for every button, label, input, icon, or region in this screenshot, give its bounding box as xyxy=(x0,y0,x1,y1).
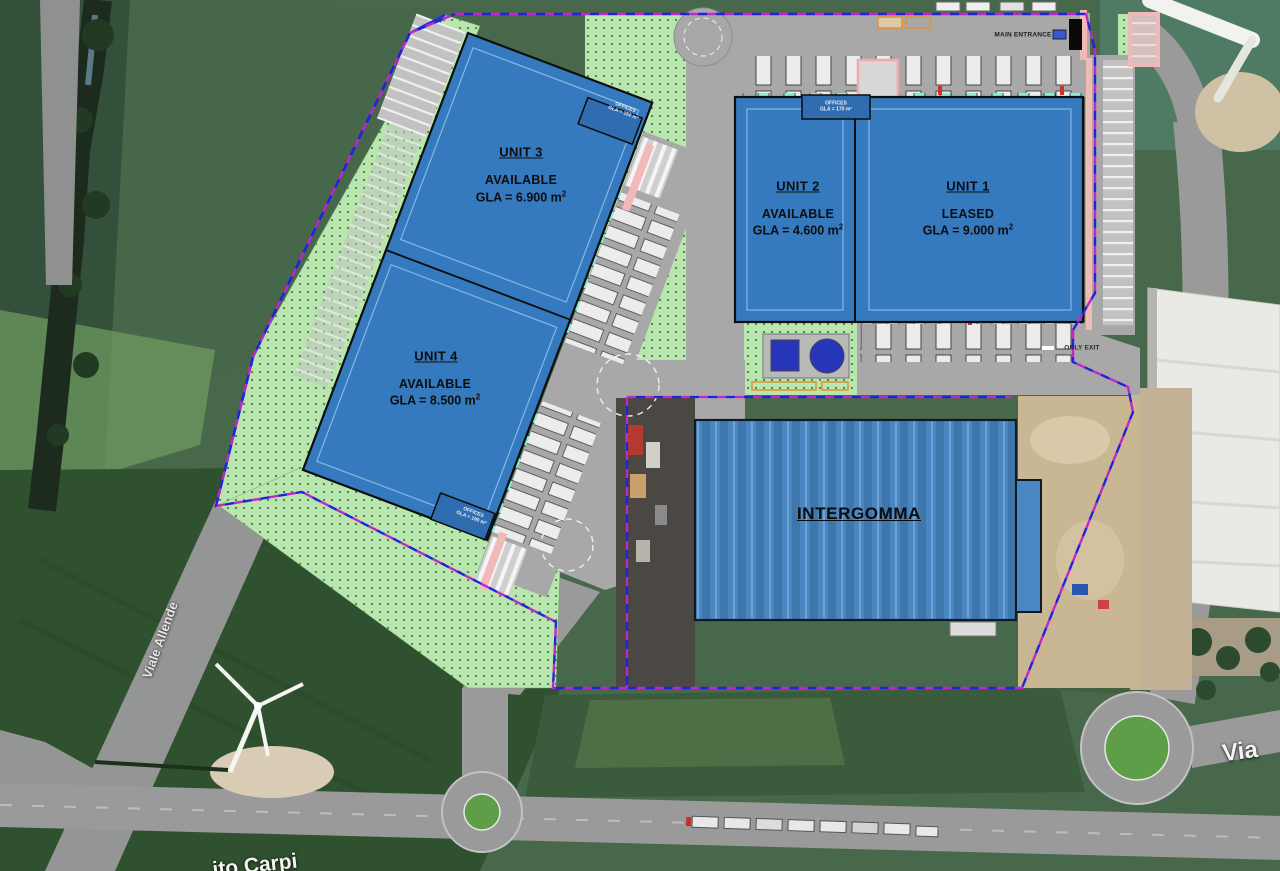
unit-4-status: AVAILABLE xyxy=(399,377,471,391)
masterplan-graphics xyxy=(0,0,1280,871)
unit-2-label: UNIT 2 xyxy=(776,179,820,194)
masterplan-satellite-view: UNIT 3 AVAILABLE GLA = 6.900 m2 UNIT 4 A… xyxy=(0,0,1280,871)
unit-3-label: UNIT 3 xyxy=(499,145,543,160)
unit-4-gla: GLA = 8.500 m2 xyxy=(390,392,481,407)
unit-2-status: AVAILABLE xyxy=(762,207,834,221)
unit-2-gla: GLA = 4.600 m2 xyxy=(753,222,844,237)
only-exit-label: ONLY EXIT xyxy=(1064,345,1099,352)
road-label-via-fragment: Via xyxy=(1221,736,1260,768)
unit-4-label: UNIT 4 xyxy=(414,349,458,364)
roundabout-south xyxy=(442,772,522,852)
intergomma-extension xyxy=(1016,480,1041,612)
roundabout-east xyxy=(1081,692,1193,804)
unit-3-status: AVAILABLE xyxy=(485,173,557,187)
unit-2-offices-label: OFFICESGLA = 170 m² xyxy=(820,101,852,113)
main-entrance-label: MAIN ENTRANCE xyxy=(994,32,1051,39)
intergomma-label: INTERGOMMA xyxy=(797,504,921,524)
unit-1-label: UNIT 1 xyxy=(946,179,990,194)
unit-3-gla: GLA = 6.900 m2 xyxy=(476,189,567,204)
unit-1-status: LEASED xyxy=(942,207,995,221)
sprinkler-tanks xyxy=(752,334,849,390)
unit-1-gla: GLA = 9.000 m2 xyxy=(923,222,1014,237)
